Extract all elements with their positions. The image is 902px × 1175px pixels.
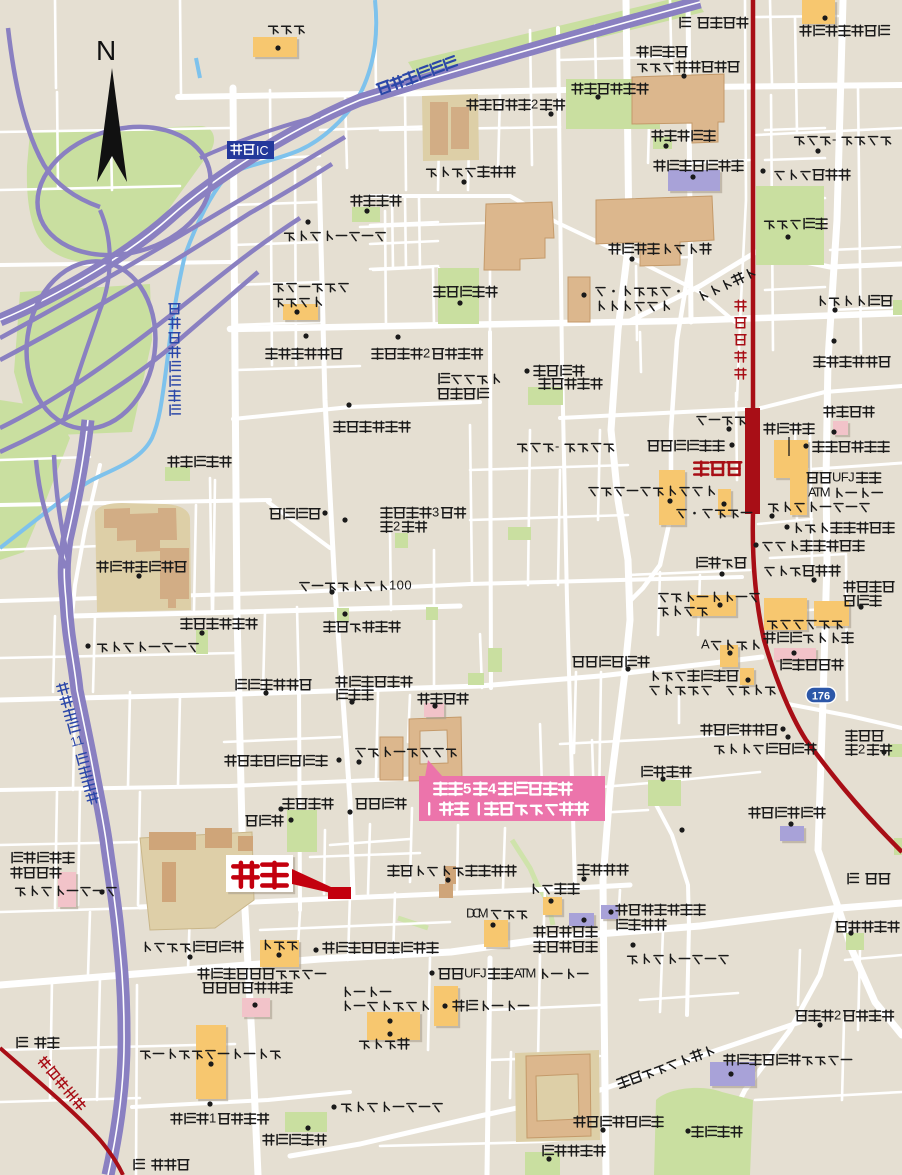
svg-text:2: 2 bbox=[423, 346, 430, 361]
svg-text:2: 2 bbox=[834, 1008, 841, 1023]
svg-text:2: 2 bbox=[858, 742, 865, 757]
svg-text:2: 2 bbox=[531, 97, 538, 112]
svg-text:ATM: ATM bbox=[808, 485, 831, 500]
svg-text:A: A bbox=[701, 637, 710, 652]
svg-text:5: 5 bbox=[463, 780, 471, 797]
svg-text:-: - bbox=[555, 439, 559, 454]
svg-text:DCM: DCM bbox=[466, 906, 489, 921]
svg-text:176: 176 bbox=[812, 691, 830, 703]
svg-text:3: 3 bbox=[432, 505, 439, 520]
svg-text:2: 2 bbox=[393, 519, 400, 534]
svg-text:ATM: ATM bbox=[514, 966, 537, 981]
svg-text:4: 4 bbox=[488, 780, 497, 797]
svg-text:UFJ: UFJ bbox=[464, 966, 487, 981]
svg-text:UFJ: UFJ bbox=[832, 470, 855, 485]
svg-text:100: 100 bbox=[389, 578, 412, 593]
svg-text:1: 1 bbox=[209, 1111, 216, 1126]
svg-text:N: N bbox=[96, 35, 116, 66]
svg-text:IC: IC bbox=[256, 144, 269, 158]
svg-text:-: - bbox=[832, 132, 836, 147]
